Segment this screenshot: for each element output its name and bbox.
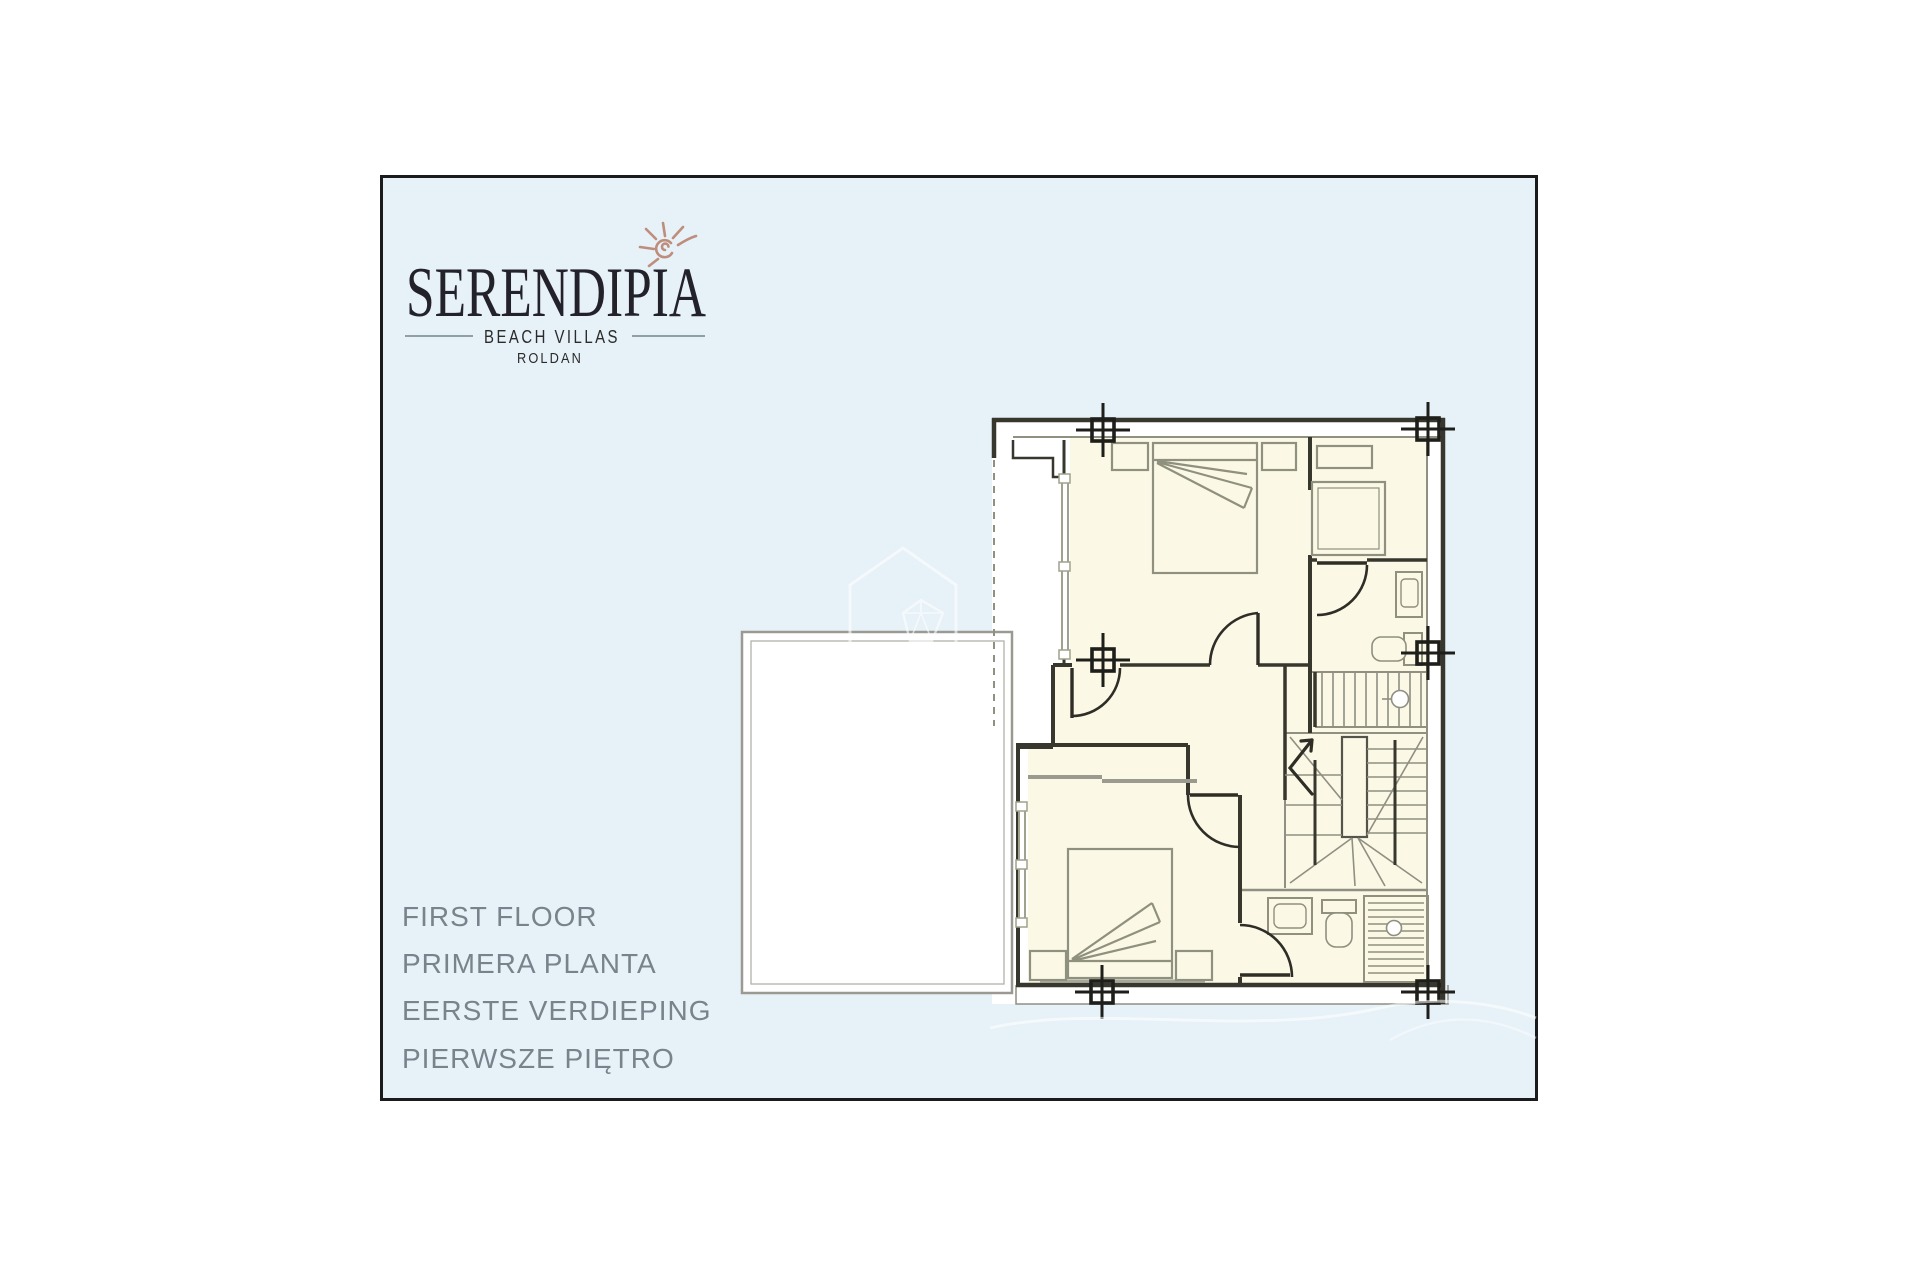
logo-location: ROLDAN [517, 350, 583, 367]
floor-label-polish: PIERWSZE PIĘTRO [402, 1045, 675, 1073]
terrace [742, 632, 1012, 993]
plan-and-logo-graphics: SERENDIPIA BEACH VILLAS ROLDAN [0, 0, 1920, 1280]
decorative-swirl [1390, 1019, 1536, 1040]
floor-label-english: FIRST FLOOR [402, 903, 598, 931]
toilet [1322, 900, 1356, 947]
decorative-swirl [990, 1001, 1536, 1028]
floor-label-dutch: EERSTE VERDIEPING [402, 997, 712, 1025]
logo: SERENDIPIA BEACH VILLAS ROLDAN [405, 223, 706, 367]
washbasin [1268, 898, 1312, 934]
floor-plan [742, 402, 1536, 1040]
brochure-page: SERENDIPIA BEACH VILLAS ROLDAN [0, 0, 1920, 1280]
toilet [1372, 633, 1422, 665]
floor-label-spanish: PRIMERA PLANTA [402, 950, 657, 978]
interior-floor [1028, 437, 1427, 985]
logo-tagline: BEACH VILLAS [484, 327, 620, 347]
logo-name: SERENDIPIA [406, 254, 706, 332]
washbasin [1396, 572, 1422, 617]
